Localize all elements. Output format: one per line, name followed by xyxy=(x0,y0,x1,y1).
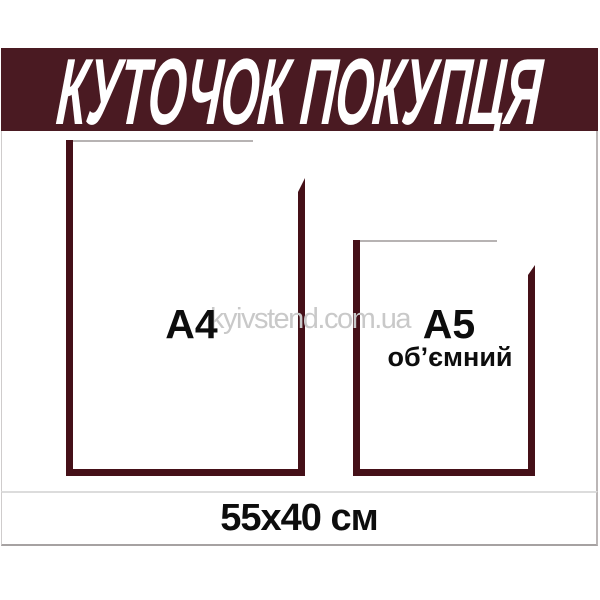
pocket-a5-label: А5 xyxy=(353,304,535,345)
header-band: КУТОЧОК ПОКУПЦЯ xyxy=(1,48,598,131)
pocket-a5-top-edge xyxy=(353,240,497,242)
pocket-a4: А4 xyxy=(66,140,305,476)
footer-strip: 55x40 см xyxy=(1,491,598,546)
pocket-a4-label: А4 xyxy=(66,304,305,345)
pocket-a5-bottom-edge xyxy=(353,469,535,476)
stand-title: КУТОЧОК ПОКУПЦЯ xyxy=(54,45,545,139)
pocket-a4-bottom-edge xyxy=(66,469,305,476)
pocket-a4-top-edge xyxy=(66,140,253,142)
stand-dimensions-label: 55x40 см xyxy=(220,497,377,540)
pocket-a5: А5 об’ємний xyxy=(353,240,535,476)
pocket-a5-sublabel: об’ємний xyxy=(353,344,535,371)
